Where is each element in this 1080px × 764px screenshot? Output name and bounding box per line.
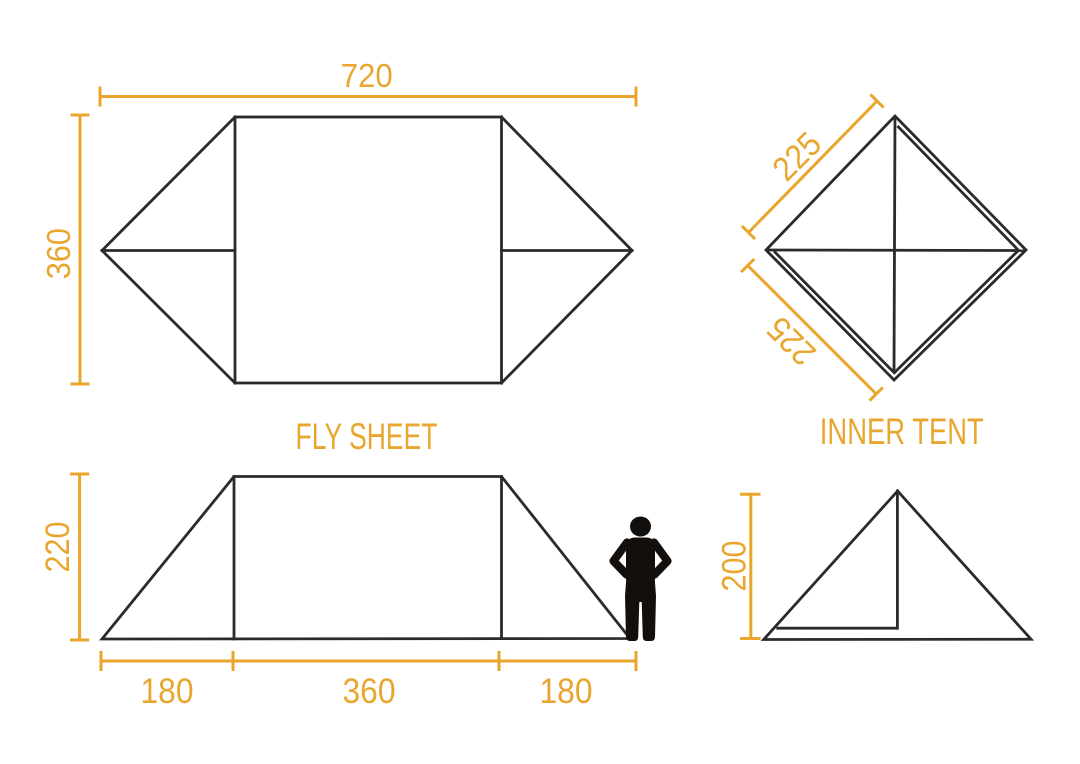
svg-text:180: 180 [141,672,194,711]
svg-text:200: 200 [716,541,754,592]
svg-text:360: 360 [343,672,396,711]
svg-text:220: 220 [39,522,77,573]
svg-text:360: 360 [41,228,78,279]
svg-text:180: 180 [540,672,593,711]
svg-text:720: 720 [341,58,393,95]
svg-text:FLY SHEET: FLY SHEET [296,416,438,457]
svg-text:INNER TENT: INNER TENT [820,411,984,452]
